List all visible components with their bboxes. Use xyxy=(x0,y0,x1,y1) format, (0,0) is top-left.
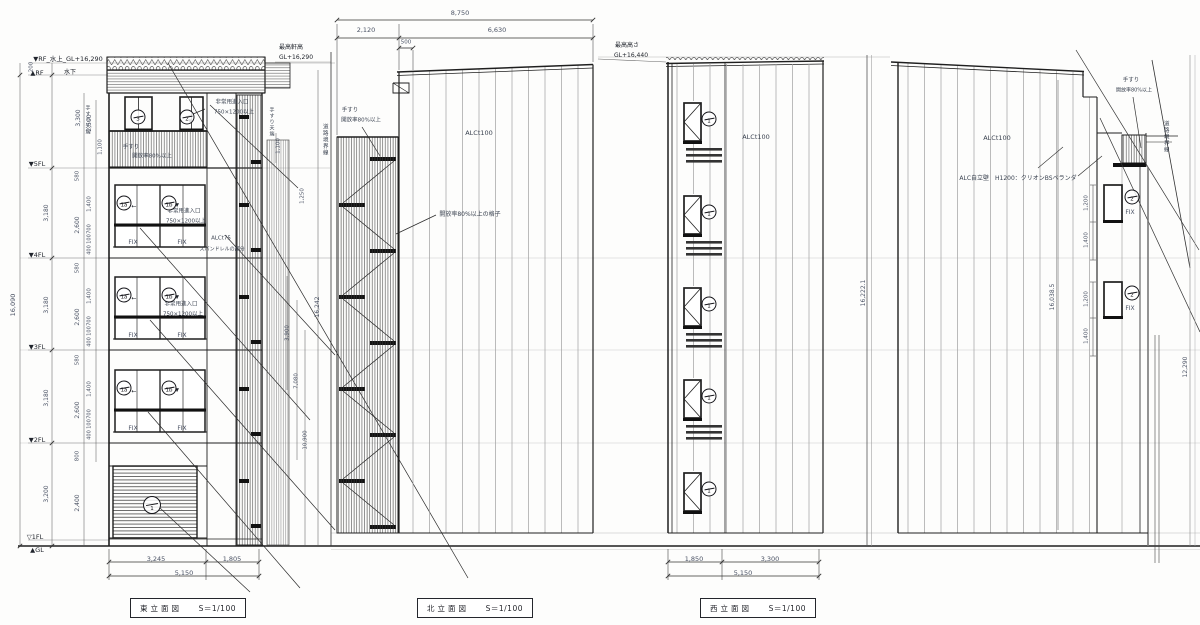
west-title-box: 西立面図 S＝1/100 xyxy=(700,598,816,618)
east-stair-strip xyxy=(237,95,262,545)
west-title: 西立面図 xyxy=(710,603,752,614)
east-side-strip xyxy=(267,140,289,545)
south-balcony-handrail xyxy=(1122,135,1146,163)
north-alc-wall xyxy=(399,65,593,534)
south-alc-wall xyxy=(898,63,1097,533)
east-2f-windows xyxy=(113,370,207,432)
east-title: 東立面図 xyxy=(140,603,182,614)
garage-shutter xyxy=(113,466,197,538)
east-balcony-handrail xyxy=(109,131,207,167)
south-elevation xyxy=(891,50,1200,563)
east-bottom-dims xyxy=(109,549,259,580)
north-stair-grating xyxy=(337,137,398,533)
elevation-drawing-sheet: 東立面図 S＝1/100 北立面図 S＝1/100 西立面図 S＝1/100 ▼… xyxy=(0,0,1200,625)
west-scale: S＝1/100 xyxy=(769,603,806,614)
east-5f-windows xyxy=(125,97,203,132)
west-bottom-dims xyxy=(668,549,819,580)
north-title-box: 北立面図 S＝1/100 xyxy=(417,598,533,618)
north-elevation xyxy=(331,20,593,546)
elevation-drawing-canvas xyxy=(0,0,1200,625)
north-title: 北立面図 xyxy=(427,603,469,614)
west-elevation xyxy=(598,57,824,580)
north-scale: S＝1/100 xyxy=(486,603,523,614)
east-4f-windows xyxy=(113,185,207,247)
east-title-box: 東立面図 S＝1/100 xyxy=(130,598,246,618)
site-boundary-lines xyxy=(867,55,872,546)
east-scale: S＝1/100 xyxy=(199,603,236,614)
south-fix-windows xyxy=(1103,185,1123,319)
east-3f-windows xyxy=(113,277,207,339)
south-right-verticals xyxy=(1148,55,1195,563)
